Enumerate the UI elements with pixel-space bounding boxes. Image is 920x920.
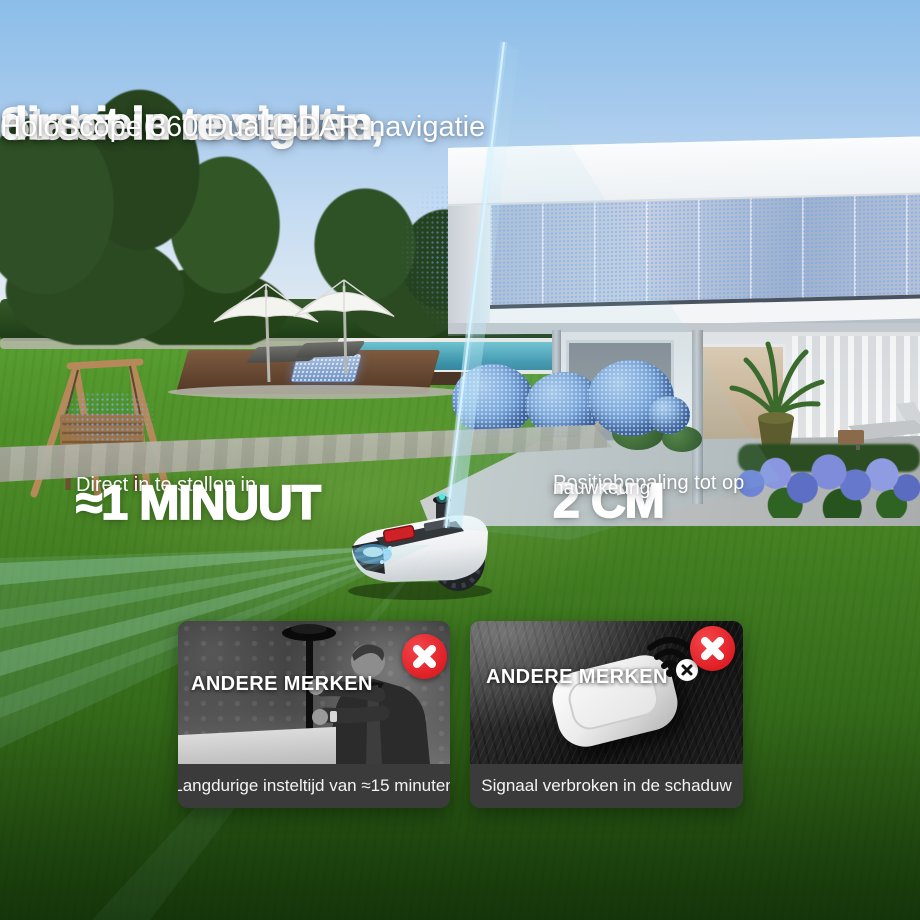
- stat-setup-value: ≈1 MINUUT: [76, 480, 320, 528]
- x-circle-icon: [690, 626, 735, 671]
- card-title: ANDERE MERKEN: [486, 666, 668, 689]
- card-caption: Langdurige insteltijd van ≈15 minuten: [178, 764, 450, 808]
- balcony-glass-point-cloud: [490, 194, 920, 309]
- hydrangea-flowers: [732, 446, 920, 518]
- chaise-lounge: [836, 400, 920, 452]
- robot-mower: [338, 488, 498, 603]
- point-cloud-bush: [452, 364, 534, 436]
- point-cloud-swing: [60, 392, 156, 450]
- stat-accuracy-qualifier: nauwkeurig: [553, 478, 650, 500]
- card-title: ANDERE MERKEN: [191, 673, 373, 696]
- house-upper-floor: [448, 136, 920, 330]
- potted-plant: [722, 330, 830, 462]
- promo-image: Stabiele navigatie, direct in te stellen…: [0, 0, 920, 920]
- umbrella: [284, 278, 404, 378]
- house-wall: [448, 205, 490, 330]
- comparison-card-signal: ANDERE MERKEN Signaal verbroken in de sc…: [470, 621, 743, 808]
- point-cloud-bush: [648, 396, 690, 434]
- deck-gravel: [168, 385, 463, 399]
- other-brand-signal-photo: ANDERE MERKEN: [470, 621, 743, 764]
- comparison-card-setup: ANDERE MERKEN Langdurige insteltijd van …: [178, 621, 450, 808]
- card-caption: Signaal verbroken in de schaduw: [470, 764, 743, 808]
- x-circle-icon: [402, 634, 447, 679]
- page-subtitle: HoloScope 360 Dual-LiDAR-navigatie: [0, 111, 485, 145]
- other-brand-setup-photo: ANDERE MERKEN: [178, 621, 450, 764]
